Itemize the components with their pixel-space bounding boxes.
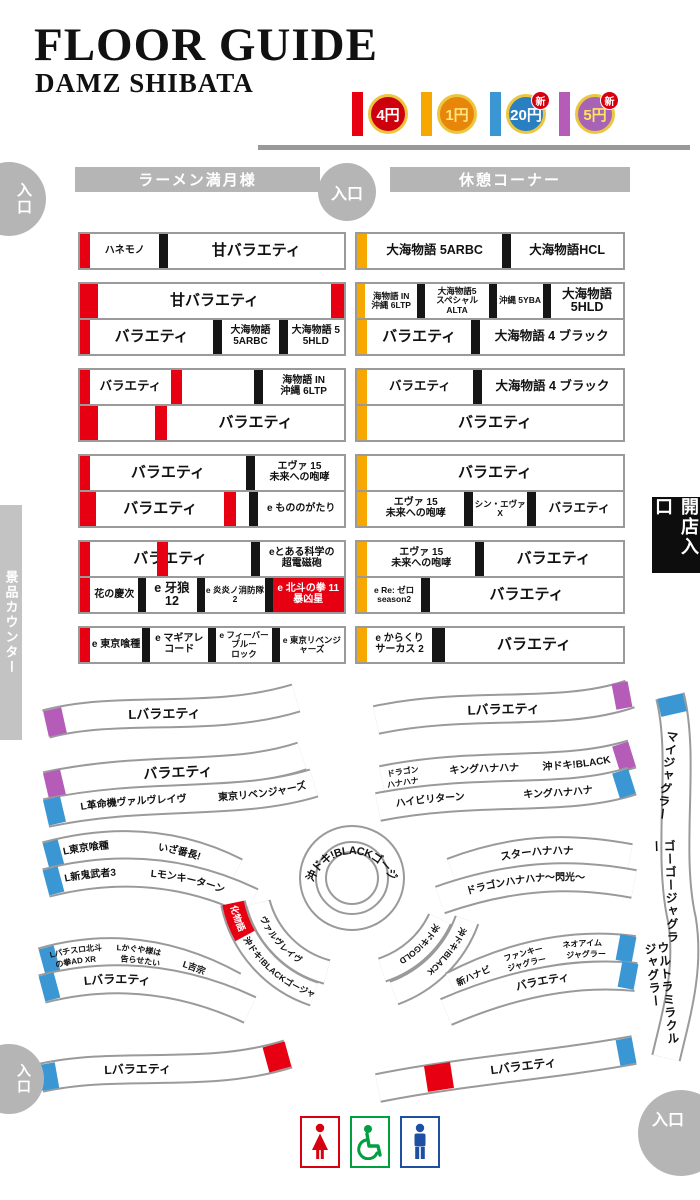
legend-item: 20円新 [490, 92, 546, 136]
divider [254, 370, 263, 404]
island-row: バラエティeとある科学の 超電磁砲 [80, 542, 344, 576]
island-cell: e マギアレコード [150, 628, 208, 662]
island-cell: ハネモノ [90, 234, 159, 268]
header-divider [258, 145, 690, 150]
color-bar [157, 542, 168, 576]
band-end-color-cap [618, 947, 634, 950]
color-bar [80, 578, 90, 612]
island-row: エヴァ 15 未来への咆哮シン・エヴァ Xバラエティ [357, 490, 623, 526]
divider [159, 234, 168, 268]
divider [138, 578, 146, 612]
island-cell: バラエティ [536, 492, 623, 526]
entrance-top-left-label: 入口 [13, 182, 34, 216]
accessible-restroom [350, 1116, 390, 1168]
new-badge: 新 [600, 91, 619, 110]
island-cell: eとある科学の 超電磁砲 [260, 542, 344, 576]
color-bar [331, 284, 344, 318]
color-bar [155, 406, 167, 440]
island-cell: e 北斗の拳 11 暴凶星 [273, 578, 344, 612]
island-cell: e からくり サーカス 2 [367, 628, 432, 662]
new-badge: 新 [531, 91, 550, 110]
island-cell: 花の慶次 [90, 578, 138, 612]
jaggler-label-2: ゴーゴージャグラー [649, 840, 679, 953]
open-entrance-label: 開店入口 [652, 497, 700, 573]
island-grid-right: 大海物語 5ARBC大海物語HCL海物語 IN 沖縄 6LTP大海物語5 スペシ… [355, 232, 625, 676]
restroom-area [300, 1116, 440, 1168]
island-row: バラエティエヴァ 15 未来への咆哮 [80, 456, 344, 490]
machine-island: バラエティ大海物語 4 ブラックバラエティ [355, 368, 625, 442]
arc-label: バラエティ [143, 763, 213, 782]
island-cell: e 東京喰種 [90, 628, 142, 662]
page-subtitle: DAMZ SHIBATA [35, 70, 254, 97]
island-cell: e 東京リベンジャーズ [280, 628, 344, 662]
island-row: バラエティ大海物語 4 ブラック [357, 370, 623, 404]
island-row: エヴァ 15 未来への咆哮バラエティ [357, 542, 623, 576]
entrance-top-left: 入口 [0, 162, 46, 236]
island-cell: バラエティ [367, 456, 623, 490]
island-cell: 大海物語 5ARBC [367, 234, 502, 268]
machine-island: ハネモノ甘バラエティ [78, 232, 346, 270]
divider [473, 370, 482, 404]
island-cell: 海物語 IN 沖縄 6LTP [263, 370, 344, 404]
color-bar [357, 542, 367, 576]
machine-island: エヴァ 15 未来への咆哮バラエティe Re: ゼロ season2バラエティ [355, 540, 625, 614]
man-icon [408, 1123, 432, 1161]
rate-coin-icon: 20円新 [506, 94, 546, 134]
entrance-top-mid: 入口 [318, 163, 376, 221]
machine-island: 大海物語 5ARBC大海物語HCL [355, 232, 625, 270]
island-cell: バラエティ [367, 406, 623, 440]
floor-arcs-svg: LバラエティLバラエティバラエティL革命機ヴァルヴレイヴ東京リベンジャーズキング… [0, 680, 700, 1120]
island-row: 花の慶次e 牙狼 12e 炎炎ノ消防隊 2e 北斗の拳 11 暴凶星 [80, 576, 344, 612]
island-cell: 大海物語 4 ブラック [480, 320, 623, 354]
island-row: バラエティ [357, 404, 623, 440]
island-cell [236, 492, 249, 526]
island-row: バラエティ [80, 404, 344, 440]
island-cell: 甘バラエティ [98, 284, 331, 318]
island-row: バラエティ大海物語 4 ブラック [357, 318, 623, 354]
band-end-color-cap [266, 1054, 288, 1060]
band-end-color-cap [614, 694, 630, 697]
island-cell: e フィーバーブルー ロック [216, 628, 271, 662]
arc-label: Lバラエティ [467, 700, 540, 717]
arc-label: Lバラエティ [128, 705, 201, 722]
divider [417, 284, 425, 318]
color-bar [357, 370, 367, 404]
island-cell: 大海物語HCL [511, 234, 623, 268]
entrance-bottom-right-label: 入口 [652, 1106, 684, 1130]
divider [489, 284, 497, 318]
island-cell: 大海物語 4 ブラック [482, 370, 623, 404]
divider [272, 628, 280, 662]
island-row: バラエティe もののがたり [80, 490, 344, 526]
rate-coin-icon: 1円 [437, 94, 477, 134]
band-end-color-cap [46, 809, 63, 813]
color-bar [357, 492, 367, 526]
island-cell: バラエティ [90, 320, 213, 354]
color-bar [357, 456, 367, 490]
island-row: e 東京喰種e マギアレコードe フィーバーブルー ロックe 東京リベンジャーズ [80, 628, 344, 662]
band-end-color-cap [46, 720, 64, 724]
color-bar [171, 370, 182, 404]
island-cell: バラエティ [445, 628, 623, 662]
rate-legend: 4円1円20円新5円新 [352, 92, 615, 136]
island-cell: バラエティ [96, 492, 224, 526]
band-end-color-cap [616, 754, 632, 759]
island-cell: e 牙狼 12 [146, 578, 197, 612]
zone-ramen: ラーメン満月様 [75, 167, 320, 192]
entrance-top-mid-label: 入口 [331, 180, 363, 204]
band-end-color-cap [618, 1050, 634, 1053]
machine-island: e からくり サーカス 2バラエティ [355, 626, 625, 664]
rate-coin-icon: 4円 [368, 94, 408, 134]
island-cell: 海物語 IN 沖縄 6LTP [365, 284, 417, 318]
island-cell: e もののがたり [258, 492, 344, 526]
color-bar [80, 492, 96, 526]
machine-island: 海物語 IN 沖縄 6LTP大海物語5 スペシャル ALTA沖縄 5YBA大海物… [355, 282, 625, 356]
island-row: バラエティ海物語 IN 沖縄 6LTP [80, 370, 344, 404]
legend-color-bar [490, 92, 501, 136]
color-bar [357, 284, 365, 318]
machine-island: バラエティeとある科学の 超電磁砲花の慶次e 牙狼 12e 炎炎ノ消防隊 2e … [78, 540, 346, 614]
color-bar [357, 578, 367, 612]
island-cell: バラエティ [90, 542, 251, 576]
color-bar [80, 234, 90, 268]
island-cell: バラエティ [367, 370, 473, 404]
entrance-bottom-left-label: 入口 [14, 1063, 34, 1095]
island-cell: 沖縄 5YBA [497, 284, 543, 318]
island-cell: シン・エヴァ X [473, 492, 526, 526]
band-end-color-cap [46, 852, 61, 856]
band-end-color-cap [616, 781, 632, 786]
color-bar [357, 320, 367, 354]
color-bar [80, 628, 90, 662]
island-cell: 大海物語 5HLD [551, 284, 623, 318]
band-end-color-cap [46, 782, 63, 786]
divider [432, 628, 445, 662]
island-cell: 大海物語 5 5HLD [288, 320, 344, 354]
floor-guide-page: FLOOR GUIDE DAMZ SHIBATA 4円1円20円新5円新 入口 … [0, 0, 700, 1200]
island-cell [182, 370, 255, 404]
island-row: 大海物語 5ARBC大海物語HCL [357, 234, 623, 268]
machine-island: バラエティエヴァ 15 未来への咆哮シン・エヴァ Xバラエティ [355, 454, 625, 528]
arc-label: Lバラエティ [83, 972, 151, 988]
band-end-color-cap [670, 696, 674, 714]
island-grid-left: ハネモノ甘バラエティ甘バラエティバラエティ大海物語 5ARBC大海物語 5 5H… [78, 232, 346, 676]
island-cell: e 炎炎ノ消防隊 2 [205, 578, 264, 612]
island-cell: エヴァ 15 未来への咆哮 [255, 456, 344, 490]
divider [197, 578, 205, 612]
divider [421, 578, 430, 612]
divider [208, 628, 216, 662]
legend-color-bar [352, 92, 363, 136]
island-row: バラエティ大海物語 5ARBC大海物語 5 5HLD [80, 318, 344, 354]
color-bar [80, 456, 90, 490]
machine-island: バラエティ海物語 IN 沖縄 6LTPバラエティ [78, 368, 346, 442]
island-cell [98, 406, 155, 440]
divider [249, 492, 258, 526]
color-bar [80, 284, 98, 318]
divider [543, 284, 551, 318]
island-cell: バラエティ [90, 456, 246, 490]
color-bar [357, 234, 367, 268]
island-row: ハネモノ甘バラエティ [80, 234, 344, 268]
legend-item: 1円 [421, 92, 477, 136]
color-bar [224, 492, 236, 526]
band-end-color-cap [42, 985, 57, 989]
island-cell: e Re: ゼロ season2 [367, 578, 421, 612]
color-bar [357, 628, 367, 662]
band-end-color-cap [426, 1075, 452, 1079]
island-row: e Re: ゼロ season2バラエティ [357, 576, 623, 612]
island-cell: エヴァ 15 未来への咆哮 [367, 542, 475, 576]
band-end-color-cap [46, 879, 61, 883]
machine-island: 甘バラエティバラエティ大海物語 5ARBC大海物語 5 5HLD [78, 282, 346, 356]
zone-rest: 休憩コーナー [390, 167, 630, 192]
rate-coin-icon: 5円新 [575, 94, 615, 134]
island-row: バラエティ [357, 456, 623, 490]
legend-color-bar [421, 92, 432, 136]
divider [471, 320, 480, 354]
island-row: 海物語 IN 沖縄 6LTP大海物語5 スペシャル ALTA沖縄 5YBA大海物… [357, 284, 623, 318]
divider [279, 320, 288, 354]
color-bar [80, 370, 90, 404]
legend-color-bar [559, 92, 570, 136]
island-row: e からくり サーカス 2バラエティ [357, 628, 623, 662]
divider [251, 542, 260, 576]
divider [464, 492, 473, 526]
divider [246, 456, 255, 490]
color-bar [357, 406, 367, 440]
island-row: 甘バラエティ [80, 284, 344, 318]
machine-island: バラエティエヴァ 15 未来への咆哮バラエティe もののがたり [78, 454, 346, 528]
divider [142, 628, 150, 662]
womens-restroom [300, 1116, 340, 1168]
legend-item: 5円新 [559, 92, 615, 136]
color-bar [80, 320, 90, 354]
band-end-color-cap [620, 974, 636, 977]
divider [213, 320, 222, 354]
island-cell: バラエティ [484, 542, 623, 576]
wheelchair-icon [356, 1124, 384, 1160]
band-end-color-cap [42, 958, 57, 962]
mens-restroom [400, 1116, 440, 1168]
island-cell: 大海物語 5ARBC [222, 320, 278, 354]
divider [502, 234, 511, 268]
island-cell: バラエティ [90, 370, 171, 404]
machine-island: e 東京喰種e マギアレコードe フィーバーブルー ロックe 東京リベンジャーズ [78, 626, 346, 664]
island-cell: エヴァ 15 未来への咆哮 [367, 492, 464, 526]
color-bar [80, 406, 98, 440]
divider [475, 542, 484, 576]
island-cell: バラエティ [167, 406, 344, 440]
island-cell: 甘バラエティ [168, 234, 344, 268]
divider [265, 578, 273, 612]
legend-item: 4円 [352, 92, 408, 136]
island-cell: 大海物語5 スペシャル ALTA [425, 284, 488, 318]
woman-icon [307, 1123, 333, 1161]
page-title: FLOOR GUIDE [34, 22, 378, 69]
island-cell: バラエティ [367, 320, 471, 354]
island-cell: バラエティ [430, 578, 623, 612]
divider [527, 492, 536, 526]
color-bar [80, 542, 90, 576]
arc-label: Lバラエティ [104, 1062, 171, 1077]
